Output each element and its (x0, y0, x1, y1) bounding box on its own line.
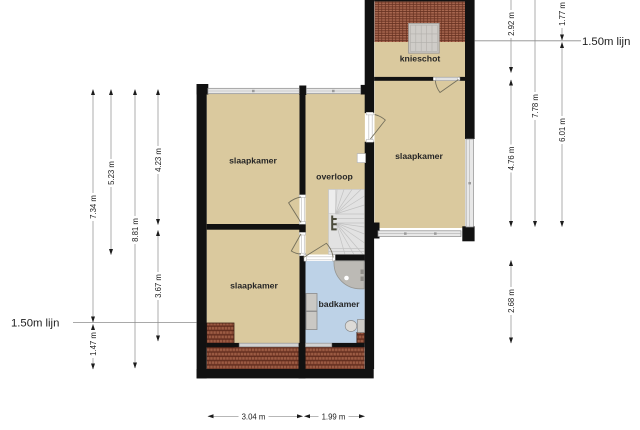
svg-text:slaapkamer: slaapkamer (229, 156, 277, 166)
svg-text:4.76 m: 4.76 m (507, 147, 516, 171)
svg-text:1.47 m: 1.47 m (89, 332, 98, 356)
svg-text:8.81 m: 8.81 m (131, 218, 140, 242)
svg-text:1.99 m: 1.99 m (322, 412, 346, 421)
svg-text:overloop: overloop (316, 172, 353, 182)
svg-text:2.68 m: 2.68 m (507, 289, 516, 313)
svg-text:slaapkamer: slaapkamer (230, 281, 278, 291)
svg-text:badkamer: badkamer (318, 299, 360, 309)
svg-text:7.34 m: 7.34 m (89, 195, 98, 219)
svg-text:1.77 m: 1.77 m (558, 2, 567, 26)
svg-text:3.67 m: 3.67 m (154, 274, 163, 298)
svg-text:2.92 m: 2.92 m (507, 12, 516, 36)
svg-text:5.23 m: 5.23 m (107, 161, 116, 185)
svg-text:6.01 m: 6.01 m (558, 118, 567, 142)
svg-text:4.23 m: 4.23 m (154, 148, 163, 172)
svg-text:knieschot: knieschot (400, 54, 441, 64)
svg-text:1.50m lijn: 1.50m lijn (582, 36, 630, 48)
svg-text:1.50m lijn: 1.50m lijn (11, 318, 59, 330)
svg-text:3.04 m: 3.04 m (242, 412, 266, 421)
svg-text:7.78 m: 7.78 m (531, 94, 540, 118)
svg-text:slaapkamer: slaapkamer (395, 151, 443, 161)
